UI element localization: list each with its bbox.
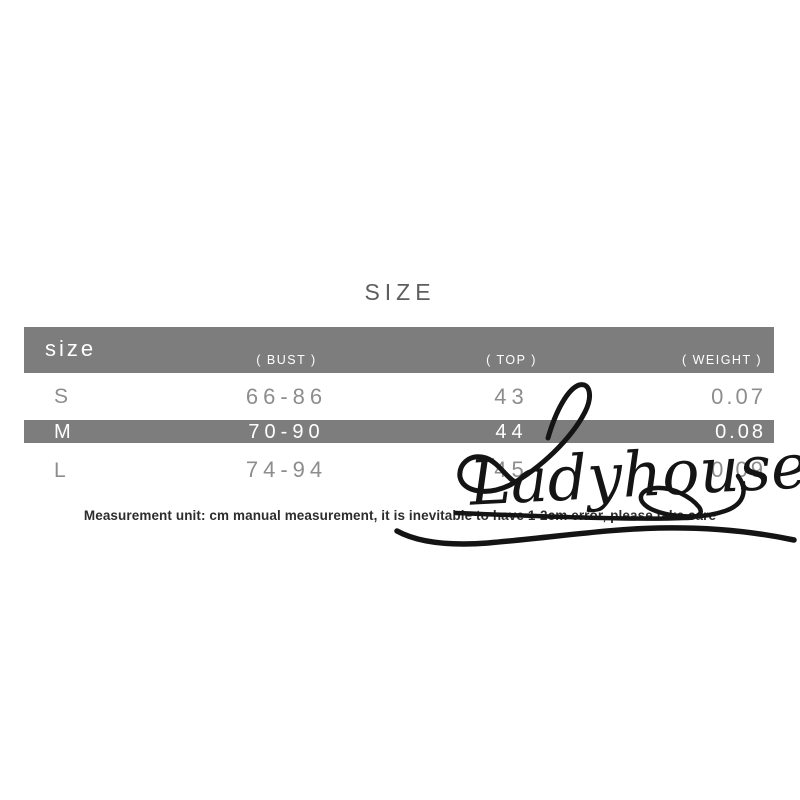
top-cell: 43	[399, 386, 624, 408]
size-cell: L	[24, 460, 174, 481]
bust-cell: 66-86	[174, 386, 399, 408]
table-header-row: size ( BUST ) ( TOP ) ( WEIGHT )	[24, 327, 774, 373]
size-cell: S	[24, 386, 174, 407]
page-title: SIZE	[0, 279, 800, 306]
table-row-s: S 66-86 43 0.07	[24, 373, 774, 420]
bust-cell: 70-90	[174, 422, 399, 442]
weight-cell: 0.07	[624, 386, 774, 408]
bust-cell: 74-94	[174, 459, 399, 481]
top-cell: 45	[399, 459, 624, 481]
top-cell: 44	[399, 422, 624, 442]
header-weight: ( WEIGHT )	[624, 354, 774, 374]
size-cell: M	[24, 422, 174, 442]
size-chart-image: SIZE size ( BUST ) ( TOP ) ( WEIGHT ) S …	[0, 0, 800, 800]
table-row-l: L 74-94 45 0.09	[24, 443, 774, 497]
header-bust: ( BUST )	[174, 354, 399, 374]
weight-cell: 0.09	[624, 459, 774, 481]
measurement-note: Measurement unit: cm manual measurement,…	[0, 508, 800, 523]
table-row-m-highlighted: M 70-90 44 0.08	[24, 420, 774, 443]
header-size-label: size	[24, 338, 174, 373]
watermark-underline-swoosh	[397, 528, 794, 544]
weight-cell: 0.08	[624, 422, 774, 442]
header-top: ( TOP )	[399, 354, 624, 374]
